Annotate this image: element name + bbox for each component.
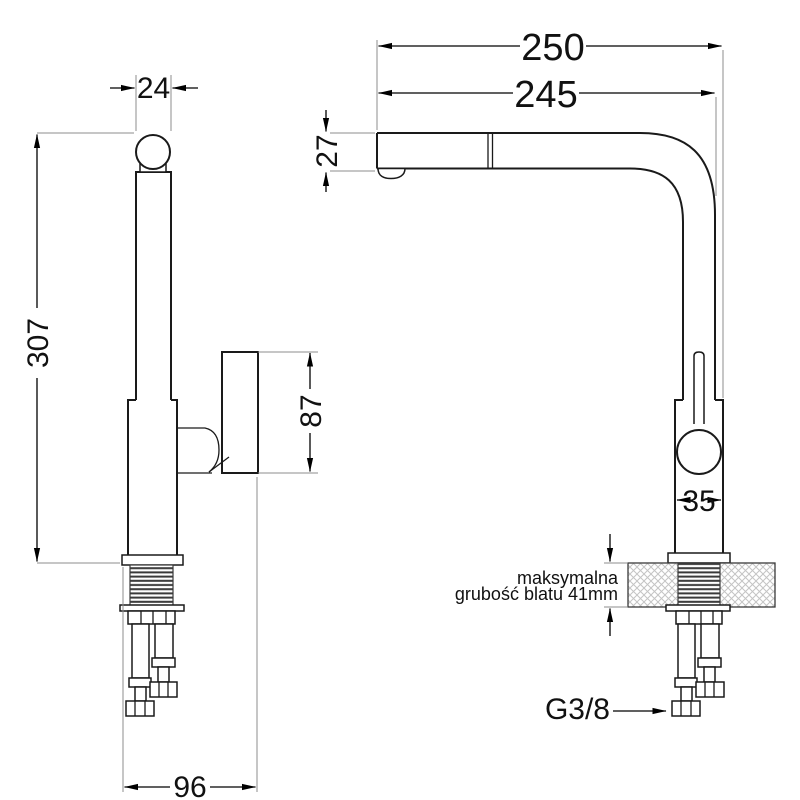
mounting-thread-side xyxy=(130,565,173,606)
mounting-bracket-side xyxy=(128,611,175,624)
dim-pipe-width-label: 24 xyxy=(137,72,170,105)
handle-lever-side xyxy=(222,352,258,473)
base-flange-front xyxy=(668,553,730,563)
dimension-labels: 250 245 24 307 87 27 35 96 G3/8 maksymal… xyxy=(22,27,716,800)
mounting-bracket-front xyxy=(676,611,722,624)
lock-nut-front xyxy=(666,605,730,611)
dim-spout-end-height-label: 27 xyxy=(311,134,344,167)
hose-right-front xyxy=(696,624,724,697)
hose-nut xyxy=(126,701,154,716)
spout-inner-contour xyxy=(377,169,683,401)
base-flange-side xyxy=(122,555,183,565)
handle-joint-stub xyxy=(177,428,219,473)
dim-body-width-label: 35 xyxy=(682,485,715,518)
handle-knob-front xyxy=(677,430,721,474)
left-view-faucet xyxy=(120,135,258,716)
aerator-bump xyxy=(378,169,405,179)
lock-nut-side xyxy=(120,605,184,611)
hose-nut xyxy=(150,682,177,697)
handle-stick-front xyxy=(694,352,704,424)
faucet-technical-drawing: 250 245 24 307 87 27 35 96 G3/8 maksymal… xyxy=(0,0,800,800)
faucet-body-side xyxy=(128,400,177,556)
thread-size-label: G3/8 xyxy=(545,693,610,726)
dim-spout-reach-label: 245 xyxy=(514,74,577,116)
dim-total-height-label: 307 xyxy=(22,318,55,368)
hose-left-front xyxy=(672,624,700,716)
spout-outer-contour xyxy=(377,133,715,400)
hose-nut xyxy=(696,682,724,697)
dim-base-depth-label: 96 xyxy=(173,771,206,800)
dim-overall-reach-label: 250 xyxy=(521,27,584,69)
mounting-thread-front xyxy=(678,563,720,607)
countertop-note-line2: grubość blatu 41mm xyxy=(455,584,618,604)
hose-left-side xyxy=(126,624,154,716)
hose-right-side xyxy=(150,624,177,697)
dim-handle-height-label: 87 xyxy=(295,394,328,427)
right-view-faucet xyxy=(377,133,775,716)
spout-pipe-side xyxy=(136,172,171,400)
spout-head-joint xyxy=(136,135,170,169)
drawing-canvas: 250 245 24 307 87 27 35 96 G3/8 maksymal… xyxy=(0,0,800,800)
pullout-head-split-line xyxy=(488,133,493,169)
hose-nut-g38 xyxy=(672,701,700,716)
